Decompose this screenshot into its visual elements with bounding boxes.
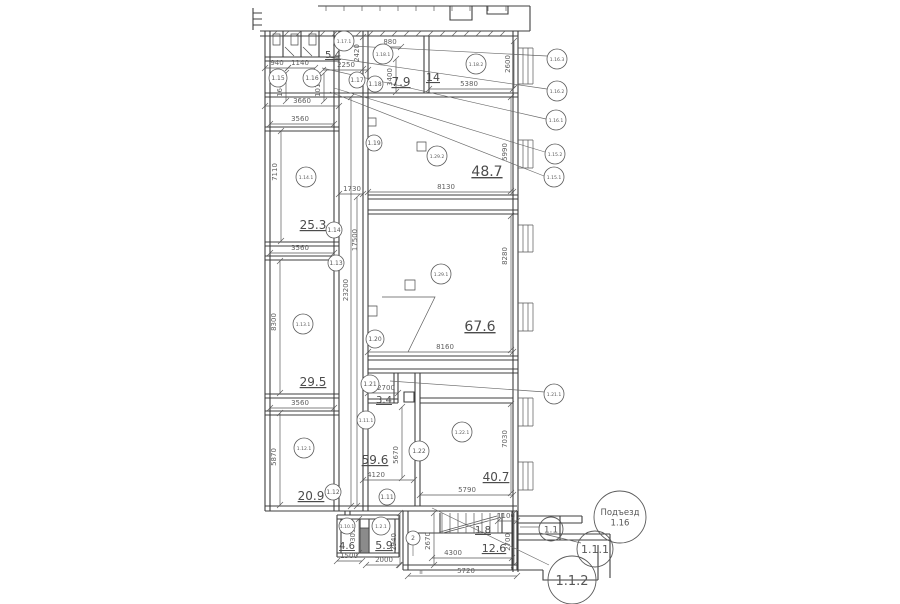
dim-text-1100: 1100	[497, 512, 515, 520]
room-tag-1.10.1: 1.10.1	[339, 518, 355, 534]
svg-text:1.16: 1.16	[611, 518, 630, 528]
leader-lines	[322, 45, 581, 565]
room-tag-1.13: 1.13	[328, 255, 344, 271]
area-label-4.6: 4.6	[339, 541, 355, 552]
room-tag-1.22.1: 1.22.1	[452, 422, 472, 442]
svg-text:1.29.2: 1.29.2	[430, 154, 445, 160]
room-tag-2: 2	[406, 531, 420, 545]
dim-line	[399, 404, 405, 481]
ref-circle-1.1: 1.1	[539, 517, 563, 541]
room-tag-1.19: 1.19	[366, 135, 382, 151]
svg-text:1.19: 1.19	[367, 140, 381, 147]
dim-text-2000: 2000	[375, 556, 393, 564]
area-label-40.7: 40.7	[483, 470, 510, 484]
dim-line	[429, 555, 515, 561]
svg-text:1.12: 1.12	[326, 489, 340, 496]
ref-circle-Подъезд-1.16: Подъезд1.16	[594, 491, 646, 543]
svg-text:1.22.1: 1.22.1	[455, 430, 470, 436]
room-tag-1.11.1: 1.11.1	[357, 411, 375, 429]
area-label-3.4: 3.4	[376, 395, 392, 406]
dim-text-3560: 3560	[291, 115, 309, 123]
svg-text:1.13: 1.13	[329, 260, 343, 267]
svg-text:1.13.1: 1.13.1	[296, 322, 311, 328]
dim-text-5790: 5790	[458, 486, 476, 494]
room-tag-1.11: 1.11	[379, 489, 395, 505]
dim-text-5380: 5380	[460, 80, 478, 88]
dim-text-23200: 23200	[342, 279, 350, 301]
dim-text-2670: 2670	[424, 532, 432, 550]
area-label-29.5: 29.5	[300, 375, 327, 389]
room-tag-1.12.1: 1.12.1	[294, 438, 314, 458]
svg-text:1.17: 1.17	[350, 77, 364, 84]
room-tag-1.18.1: 1.18.1	[373, 44, 393, 64]
dim-text-5870: 5870	[270, 448, 278, 466]
area-label-20.9: 20.9	[298, 489, 325, 503]
svg-text:1.21: 1.21	[363, 381, 377, 388]
area-label-1.8: 1.8	[475, 525, 491, 536]
room-tag-1.13.1: 1.13.1	[293, 314, 313, 334]
svg-text:1.16: 1.16	[305, 75, 319, 82]
mark-II: II	[419, 569, 423, 576]
area-label-5.9: 5.9	[375, 539, 393, 552]
area-label-14: 14	[426, 71, 440, 84]
room-tag-1.2.1: 1.2.1	[372, 517, 390, 535]
svg-text:1.14.1: 1.14.1	[299, 175, 314, 181]
area-label-5.4: 5.4	[325, 50, 341, 61]
svg-text:1.1.1: 1.1.1	[581, 543, 609, 556]
dim-text-17500: 17500	[351, 229, 359, 251]
dim-text-5670: 5670	[392, 446, 400, 464]
big-circles: Подъезд1.161.11.1.11.1.2	[539, 491, 646, 604]
dim-text-7030: 7030	[501, 430, 509, 448]
area-label-48.7: 48.7	[471, 164, 502, 180]
dim-text-2420: 2420	[353, 44, 361, 62]
dim-text-1730: 1730	[343, 185, 361, 193]
dim-text-5990: 5990	[501, 143, 509, 161]
room-tag-1.14: 1.14	[326, 222, 342, 238]
room-tag-1.15: 1.15	[269, 69, 287, 87]
dim-text-7110: 7110	[271, 163, 279, 181]
svg-text:1.15: 1.15	[271, 75, 285, 82]
dim-text-8280: 8280	[501, 247, 509, 265]
dim-text-3660: 3660	[293, 97, 311, 105]
dim-text-8130: 8130	[437, 183, 455, 191]
dim-text-2700: 2700	[377, 384, 395, 392]
room-tag-1.18.2: 1.18.2	[466, 54, 486, 74]
svg-text:1.1.2: 1.1.2	[555, 574, 588, 589]
svg-text:1.16.1: 1.16.1	[549, 118, 564, 124]
dim-text-8300: 8300	[270, 313, 278, 331]
svg-text:1.15.2: 1.15.2	[548, 152, 563, 158]
area-label-59.6: 59.6	[362, 453, 389, 467]
svg-text:1.21.1: 1.21.1	[547, 392, 562, 398]
svg-text:1.14: 1.14	[327, 227, 341, 234]
svg-text:1.11.1: 1.11.1	[359, 418, 374, 424]
floor-plan-canvas: 9401140225088053803660356017308130356081…	[0, 0, 900, 604]
svg-text:1.12.1: 1.12.1	[297, 446, 312, 452]
room-tag-1.15.1: 1.15.1	[544, 167, 564, 187]
svg-text:1.29.1: 1.29.1	[434, 272, 449, 278]
dim-text-5720: 5720	[457, 567, 475, 575]
svg-text:1.17.1: 1.17.1	[337, 39, 352, 45]
svg-text:1.16.2: 1.16.2	[550, 89, 565, 95]
room-tag-1.29.1: 1.29.1	[431, 264, 451, 284]
svg-text:1.18.1: 1.18.1	[376, 52, 391, 58]
room-tag-1.14.1: 1.14.1	[296, 167, 316, 187]
dim-text-3560: 3560	[291, 244, 309, 252]
dim-text-2600: 2600	[504, 55, 512, 73]
svg-text:1.18: 1.18	[368, 81, 382, 88]
room-tag-1.21.1: 1.21.1	[544, 384, 564, 404]
room-tag-1.22: 1.22	[409, 441, 429, 461]
svg-text:1.10.1: 1.10.1	[340, 524, 355, 530]
room-tag-1.16: 1.16	[303, 69, 321, 87]
dim-text-940: 940	[270, 59, 283, 67]
area-label-25.3: 25.3	[300, 218, 327, 232]
area-label-12.6: 12.6	[482, 542, 507, 555]
svg-text:1.11: 1.11	[380, 494, 394, 501]
area-label-7.9: 7.9	[391, 75, 410, 89]
area-labels: 5.47.91448.725.367.629.53.459.640.720.94…	[298, 50, 510, 555]
svg-text:2: 2	[411, 535, 415, 542]
shaft-hatch	[360, 528, 369, 553]
dim-text-4120: 4120	[367, 471, 385, 479]
dim-text-1500: 1500	[340, 552, 358, 560]
room-tag-1.16.1: 1.16.1	[546, 110, 566, 130]
svg-text:1.18.2: 1.18.2	[469, 62, 484, 68]
room-tag-1.20: 1.20	[366, 330, 384, 348]
dim-text-1140: 1140	[291, 59, 309, 67]
room-tag-1.12: 1.12	[325, 484, 341, 500]
room-tag-1.18: 1.18	[367, 76, 383, 92]
marks: II	[419, 569, 423, 576]
room-tag-1.15.2: 1.15.2	[545, 144, 565, 164]
columns	[368, 118, 435, 352]
svg-text:1.16.3: 1.16.3	[550, 57, 565, 63]
dim-line	[278, 128, 284, 244]
svg-text:1.20: 1.20	[368, 336, 382, 343]
room-tag-1.16.3: 1.16.3	[547, 49, 567, 69]
dim-text-4300: 4300	[444, 549, 462, 557]
room-tag-1.17: 1.17	[349, 72, 365, 88]
room-tag-1.17.1: 1.17.1	[334, 31, 354, 51]
room-tag-1.29.2: 1.29.2	[427, 146, 447, 166]
dim-text-3560: 3560	[291, 399, 309, 407]
room-tag-1.16.2: 1.16.2	[547, 81, 567, 101]
svg-text:1.2.1: 1.2.1	[375, 524, 387, 530]
svg-text:1.1: 1.1	[544, 525, 558, 535]
area-label-67.6: 67.6	[464, 319, 495, 335]
dim-text-8160: 8160	[436, 343, 454, 351]
svg-text:1.22: 1.22	[412, 448, 426, 455]
svg-text:Подъезд: Подъезд	[600, 508, 639, 518]
room-tag-1.21: 1.21	[361, 375, 379, 393]
ref-circle-1.1.1: 1.1.1	[577, 531, 613, 567]
floor-plan-svg: 9401140225088053803660356017308130356081…	[0, 0, 900, 604]
room-tags: 1.17.11.18.11.18.21.151.161.171.181.16.3…	[269, 31, 567, 545]
svg-text:1.15.1: 1.15.1	[547, 175, 562, 181]
